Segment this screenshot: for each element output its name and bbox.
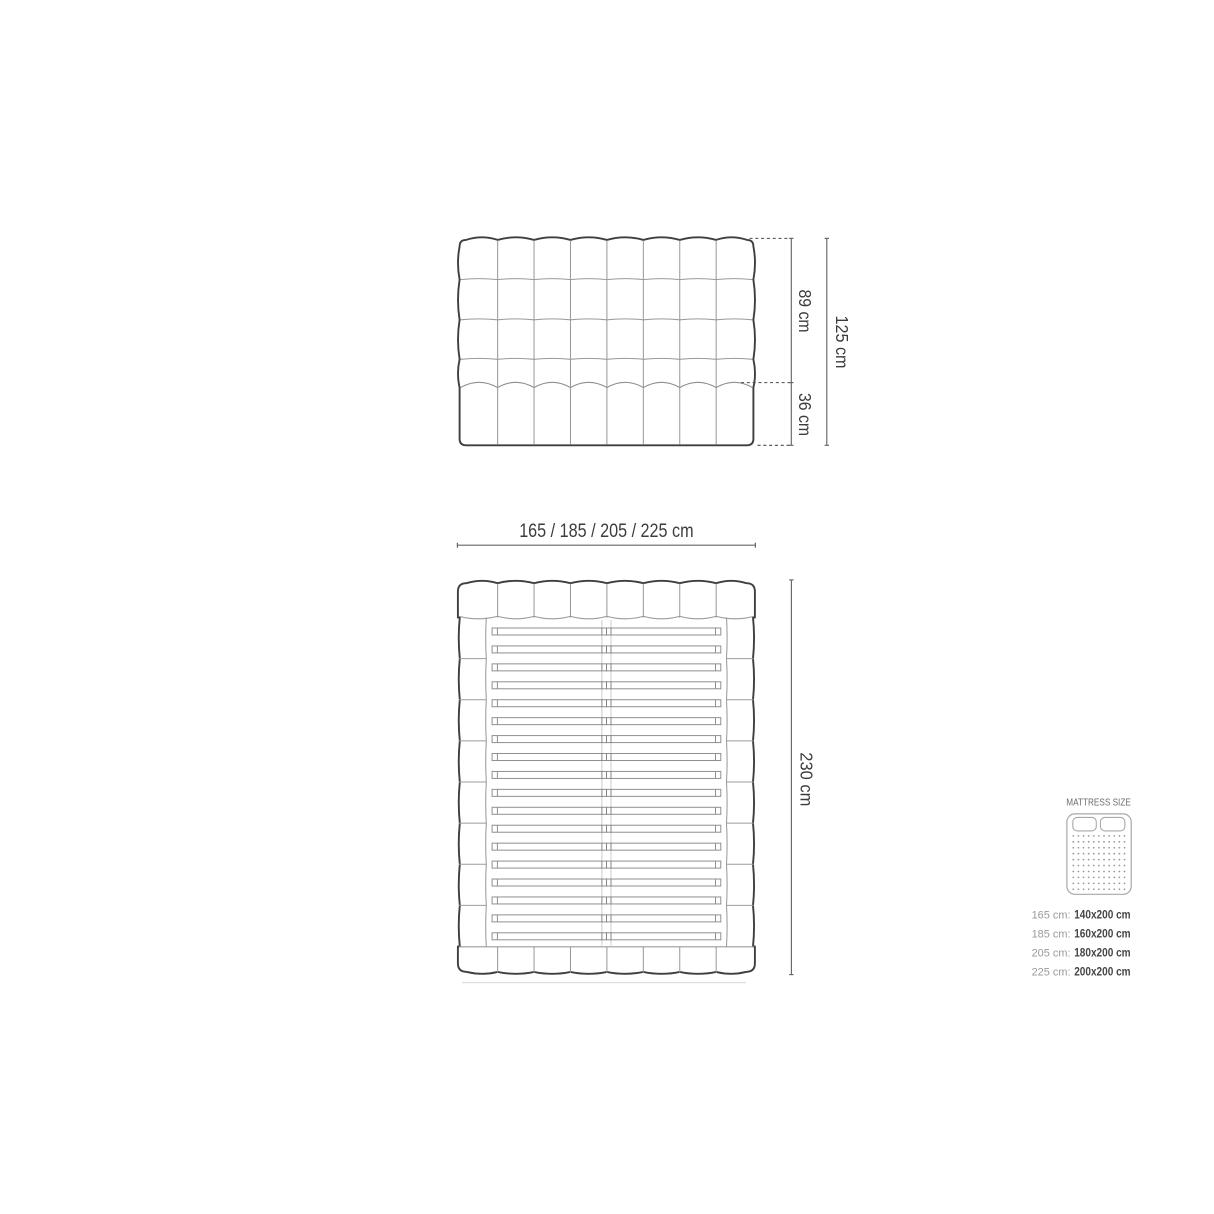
- svg-text:230 cm: 230 cm: [796, 752, 816, 806]
- svg-text:180x200 cm: 180x200 cm: [1074, 946, 1130, 960]
- svg-text:125 cm: 125 cm: [832, 316, 852, 369]
- svg-text:160x200 cm: 160x200 cm: [1074, 927, 1130, 941]
- svg-text:MATTRESS SIZE: MATTRESS SIZE: [1066, 798, 1131, 809]
- svg-text:225 cm:: 225 cm:: [1032, 966, 1071, 978]
- svg-text:200x200 cm: 200x200 cm: [1074, 964, 1130, 978]
- svg-text:165 / 185 / 205 / 225 cm: 165 / 185 / 205 / 225 cm: [519, 520, 693, 542]
- svg-text:140x200 cm: 140x200 cm: [1074, 908, 1130, 922]
- svg-text:185 cm:: 185 cm:: [1032, 929, 1071, 941]
- svg-text:165 cm:: 165 cm:: [1032, 910, 1071, 922]
- svg-text:89 cm: 89 cm: [795, 290, 815, 333]
- svg-text:36 cm: 36 cm: [795, 393, 815, 436]
- svg-text:205 cm:: 205 cm:: [1032, 948, 1071, 960]
